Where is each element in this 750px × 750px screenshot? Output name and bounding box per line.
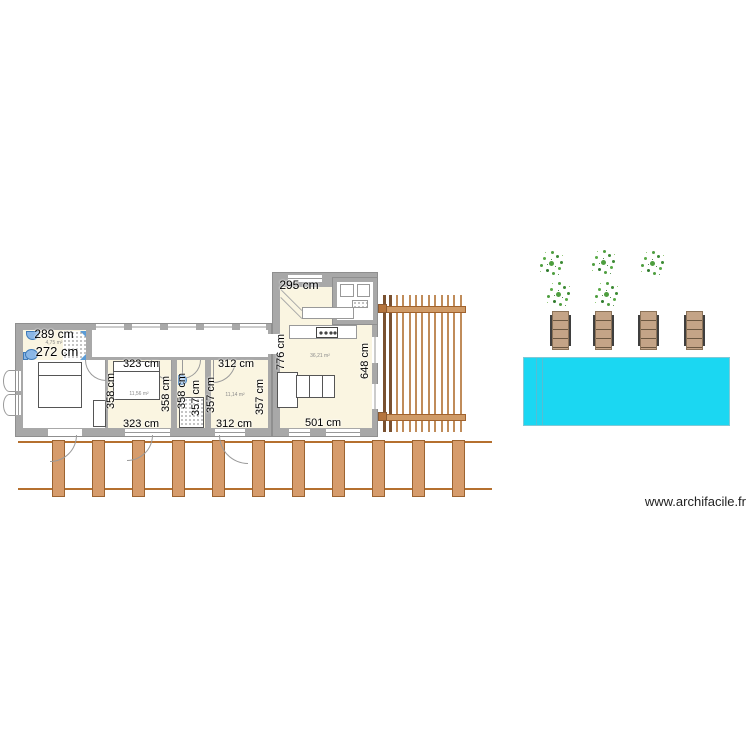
sofa-chaise[interactable] <box>277 372 298 408</box>
tree-icon[interactable] <box>604 292 609 297</box>
dim-label: 501 cm <box>303 417 343 429</box>
tree-icon[interactable] <box>601 260 606 265</box>
dim-label: 357 cm <box>205 375 217 415</box>
window[interactable] <box>289 429 310 436</box>
window[interactable] <box>168 324 196 330</box>
pergola-post[interactable] <box>378 304 387 313</box>
area-label: 11,56 m² <box>124 391 154 397</box>
window[interactable] <box>372 337 378 363</box>
dim-label: 272 cm <box>34 346 80 358</box>
dim-label: 295 cm <box>277 279 321 291</box>
area-label: 11,14 m² <box>220 392 250 398</box>
pergola-slat[interactable] <box>441 295 443 432</box>
sun-lounger[interactable] <box>686 311 703 350</box>
sun-lounger[interactable] <box>552 311 569 350</box>
dim-label: 312 cm <box>216 358 256 370</box>
dim-label: 357 cm <box>190 378 202 418</box>
pergola-slat[interactable] <box>421 295 423 432</box>
pergola-slat[interactable] <box>460 295 462 432</box>
annex-cabinet-1[interactable] <box>340 284 354 297</box>
deck-plank[interactable] <box>412 440 425 497</box>
deck-plank[interactable] <box>452 440 465 497</box>
swimming-pool[interactable] <box>523 357 730 426</box>
pergola-slat[interactable] <box>396 295 398 432</box>
sun-lounger[interactable] <box>640 311 657 350</box>
dim-label: 357 cm <box>254 377 266 417</box>
dim-label: 312 cm <box>214 418 254 430</box>
tree-icon[interactable] <box>556 292 561 297</box>
floor-plan-canvas[interactable]: 289 cm 272 cm 4,75 m² 295 cm 776 cm 648 … <box>0 0 750 750</box>
stove-icon[interactable] <box>316 327 338 338</box>
pergola-rail[interactable] <box>378 414 466 421</box>
door-swing[interactable] <box>50 435 77 462</box>
pergola-slat[interactable] <box>453 295 455 432</box>
door-swing[interactable] <box>127 435 153 461</box>
window[interactable] <box>96 324 124 330</box>
dim-label: 776 cm <box>275 332 287 372</box>
pergola-slat[interactable] <box>415 295 417 432</box>
deck-plank[interactable] <box>172 440 185 497</box>
area-label: 36,21 m² <box>305 353 335 359</box>
dim-label: 358 cm <box>160 374 172 414</box>
dim-label: 358 cm <box>105 371 117 411</box>
window[interactable] <box>372 384 378 409</box>
window[interactable] <box>204 324 232 330</box>
pergola-slat[interactable] <box>402 295 404 432</box>
dim-label: 648 cm <box>359 341 371 381</box>
annex-sink-unit[interactable] <box>352 300 368 308</box>
tree-icon[interactable] <box>549 261 554 266</box>
dim-label: 358 cm <box>176 371 188 411</box>
window-shutter-arc <box>3 394 16 416</box>
pool-lane-line <box>536 358 537 425</box>
annex-cabinet-2[interactable] <box>357 284 370 297</box>
pergola-slat[interactable] <box>434 295 436 432</box>
pergola-post[interactable] <box>378 412 387 421</box>
tree-icon[interactable] <box>650 261 655 266</box>
deck-plank[interactable] <box>372 440 385 497</box>
dim-label: 323 cm <box>121 358 161 370</box>
window[interactable] <box>326 429 360 436</box>
sofa-seats[interactable] <box>296 375 335 398</box>
master-bed[interactable] <box>38 362 82 408</box>
pergola-slat[interactable] <box>409 295 411 432</box>
window[interactable] <box>240 324 266 330</box>
kitchen-counter[interactable] <box>302 307 354 319</box>
deck-plank[interactable] <box>92 440 105 497</box>
window-shutter-arc <box>3 370 16 392</box>
bed-cover-line <box>38 375 82 376</box>
window[interactable] <box>16 395 21 415</box>
dim-label: 323 cm <box>121 418 161 430</box>
deck-plank[interactable] <box>292 440 305 497</box>
bed-cover-line <box>113 371 160 372</box>
window[interactable] <box>16 371 21 391</box>
dim-label: 289 cm <box>32 328 76 340</box>
deck-plank[interactable] <box>332 440 345 497</box>
sun-lounger[interactable] <box>595 311 612 350</box>
watermark: www.archifacile.fr <box>634 494 746 509</box>
room-corridor[interactable] <box>92 330 268 357</box>
pergola-slat[interactable] <box>389 295 392 432</box>
pergola-slat[interactable] <box>447 295 449 432</box>
pool-lane-line <box>542 358 543 425</box>
sofa-cushion-divider <box>322 376 323 397</box>
pergola-slat[interactable] <box>428 295 430 432</box>
pergola-rail[interactable] <box>378 306 466 313</box>
deck-plank[interactable] <box>252 440 265 497</box>
window[interactable] <box>132 324 160 330</box>
sofa-cushion-divider <box>309 376 310 397</box>
